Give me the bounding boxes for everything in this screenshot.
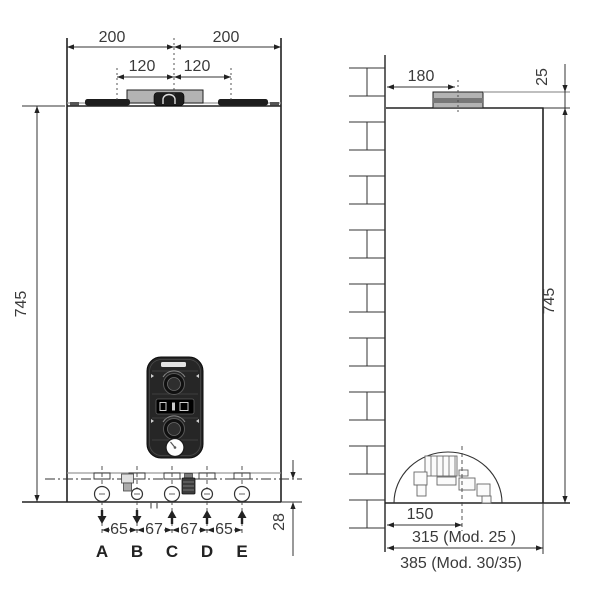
left-edge-nub bbox=[70, 102, 79, 106]
gas-cock-tab bbox=[185, 474, 193, 479]
port-label-a: A bbox=[96, 542, 108, 561]
condensate-ticks bbox=[151, 503, 157, 509]
wall-section bbox=[349, 55, 385, 552]
dim-arrows-28 bbox=[290, 472, 295, 509]
dim-315-mod25: 315 (Mod. 25 ) bbox=[412, 529, 516, 546]
port-label-b: B bbox=[131, 542, 143, 561]
front-top-assembly bbox=[70, 90, 279, 106]
dim-120-left: 120 bbox=[129, 58, 156, 75]
filling-valve-body bbox=[124, 483, 132, 491]
side-view: 180 25 745 150 315 (Mod. 25 ) 385 (Mod. … bbox=[349, 55, 570, 572]
boiler-dimension-sheet: 200 200 120 120 745 65 67 67 65 A B C D … bbox=[0, 0, 600, 600]
dim-65-ab: 65 bbox=[110, 521, 128, 538]
boiler-dimensional-drawing: 200 200 120 120 745 65 67 67 65 A B C D … bbox=[0, 0, 600, 600]
dome-part-2 bbox=[417, 485, 426, 496]
dim-200-left: 200 bbox=[99, 29, 126, 46]
port-label-d: D bbox=[201, 542, 213, 561]
dim-25: 25 bbox=[534, 68, 551, 86]
dim-65-de: 65 bbox=[215, 521, 233, 538]
dome-part-7 bbox=[482, 496, 491, 503]
port-label-c: C bbox=[166, 542, 178, 561]
dim-180: 180 bbox=[408, 68, 435, 85]
gauge-pivot bbox=[174, 446, 177, 449]
dim-150: 150 bbox=[407, 506, 434, 523]
dome-part-5 bbox=[459, 478, 475, 490]
filling-valve bbox=[122, 474, 134, 483]
front-dimensions: 200 200 120 120 745 65 67 67 65 A B C D … bbox=[13, 29, 296, 561]
dome-part-1 bbox=[414, 472, 427, 485]
dim-200-right: 200 bbox=[213, 29, 240, 46]
wall-brick-hatch bbox=[349, 68, 385, 528]
dome-part-3 bbox=[437, 477, 456, 485]
front-bottom-connections bbox=[45, 466, 302, 536]
flow-arrows-up bbox=[168, 510, 247, 518]
dim-28: 28 bbox=[271, 513, 288, 531]
display-dot bbox=[172, 403, 175, 411]
side-extension-lines bbox=[543, 108, 570, 554]
port-label-e: E bbox=[236, 542, 247, 561]
dome-part-4 bbox=[459, 470, 468, 476]
front-view: 200 200 120 120 745 65 67 67 65 A B C D … bbox=[13, 29, 302, 561]
dim-385-mod3035: 385 (Mod. 30/35) bbox=[400, 555, 522, 572]
dome-block bbox=[425, 456, 457, 476]
dim-745-front: 745 bbox=[13, 291, 30, 318]
flow-arrow-stems-down bbox=[101, 510, 138, 516]
right-vent-cap bbox=[218, 99, 268, 106]
brand-label bbox=[161, 362, 186, 367]
right-edge-nub bbox=[270, 102, 279, 106]
dim-67-cd: 67 bbox=[180, 521, 198, 538]
dim-120-right: 120 bbox=[184, 58, 211, 75]
dhw-knob-center bbox=[168, 423, 181, 436]
left-vent-cap bbox=[85, 99, 130, 106]
dim-67-bc: 67 bbox=[145, 521, 163, 538]
dim-745-side: 745 bbox=[541, 288, 558, 315]
control-panel bbox=[147, 357, 203, 458]
dome-part-6 bbox=[477, 484, 490, 496]
heating-knob-center bbox=[168, 378, 181, 391]
